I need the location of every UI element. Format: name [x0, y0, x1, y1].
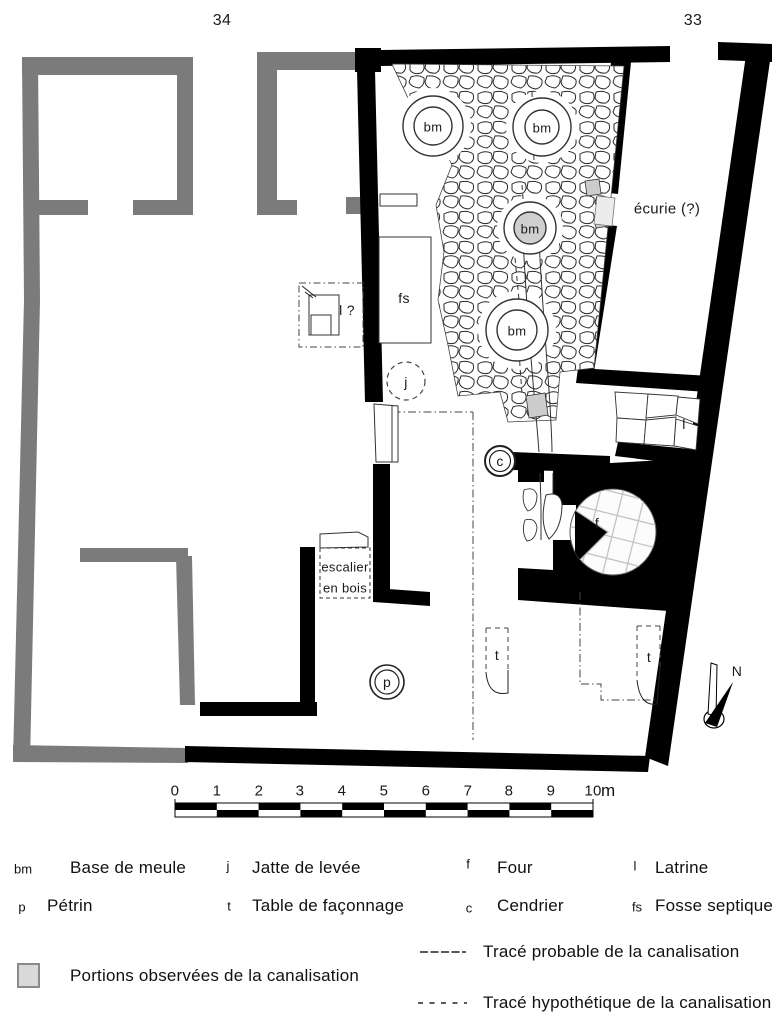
feature-label-fs: fs: [398, 290, 410, 306]
legend-label-probable: Tracé probable de la canalisation: [483, 942, 739, 962]
legend-symbol-fs: fs: [632, 900, 642, 915]
legend-label-four: Four: [497, 858, 533, 878]
legend-symbol-p: p: [18, 900, 25, 915]
legend-label-jatte-de-levee: Jatte de levée: [252, 858, 361, 878]
scale-tick-1: 1: [213, 783, 222, 800]
legend-label-table-de-faconnage: Table de façonnage: [252, 896, 404, 916]
legend-label-cendrier: Cendrier: [497, 896, 564, 916]
feature-label-l-uncertain: l ?: [339, 302, 355, 318]
feature-label-f: f: [595, 515, 599, 531]
wall-trough: [374, 404, 398, 462]
north-label: N: [732, 663, 742, 679]
room-label-ecurie: écurie (?): [634, 201, 700, 218]
feature-label-bm-4: bm: [508, 324, 527, 339]
feature-label-c: c: [496, 453, 503, 469]
legend-symbol-f: f: [466, 857, 470, 872]
scale-tick-0: 0: [171, 783, 180, 800]
feature-label-bm-2: bm: [533, 121, 552, 136]
scale-tick-5: 5: [380, 783, 389, 800]
legend-label-latrine: Latrine: [655, 858, 708, 878]
fosse-septique: [379, 194, 431, 343]
feature-label-l: l: [682, 416, 685, 432]
legend-label-base-de-meule: Base de meule: [70, 858, 186, 878]
site-plan: 34 33 bm bm bm bm fs j c f l l ? p t t é…: [0, 0, 782, 1024]
legend-label-petrin: Pétrin: [47, 896, 93, 916]
legend-observed-swatch: [18, 964, 39, 987]
scale-tick-6: 6: [422, 783, 431, 800]
scale-tick-10: 10: [584, 783, 601, 800]
scale-tick-9: 9: [547, 783, 556, 800]
legend-symbol-bm: bm: [14, 862, 32, 877]
feature-label-j: j: [404, 374, 407, 390]
feature-label-bm-3: bm: [521, 222, 540, 237]
feature-label-t-1: t: [495, 647, 499, 663]
scale-tick-7: 7: [464, 783, 473, 800]
legend-label-observed: Portions observées de la canalisation: [70, 966, 359, 986]
scale-bar: [175, 799, 593, 817]
latrine-flagstones: [615, 392, 700, 450]
stairs-label-line2: en bois: [323, 581, 367, 596]
scale-tick-8: 8: [505, 783, 514, 800]
north-arrow: [704, 663, 733, 728]
scale-tick-3: 3: [296, 783, 305, 800]
legend-label-hypothetical: Tracé hypothétique de la canalisation: [483, 993, 771, 1013]
stairs-label-line1: escalier: [321, 560, 368, 575]
legend-symbol-l: l: [634, 859, 637, 874]
scale-unit: m: [601, 781, 615, 801]
street-number-right: 33: [684, 12, 702, 30]
legend-symbol-c: c: [466, 901, 473, 916]
corridor-stones: [523, 489, 537, 541]
feature-label-bm-1: bm: [424, 120, 443, 135]
ecurie-door-sill: [594, 196, 615, 226]
legend-label-fosse-septique: Fosse septique: [655, 896, 773, 916]
legend-symbol-t: t: [227, 899, 231, 914]
scale-tick-4: 4: [338, 783, 347, 800]
feature-label-t-2: t: [647, 649, 651, 665]
scale-tick-2: 2: [255, 783, 264, 800]
legend-symbol-j: j: [227, 859, 230, 874]
feature-label-p: p: [383, 674, 391, 690]
street-number-left: 34: [213, 12, 231, 30]
